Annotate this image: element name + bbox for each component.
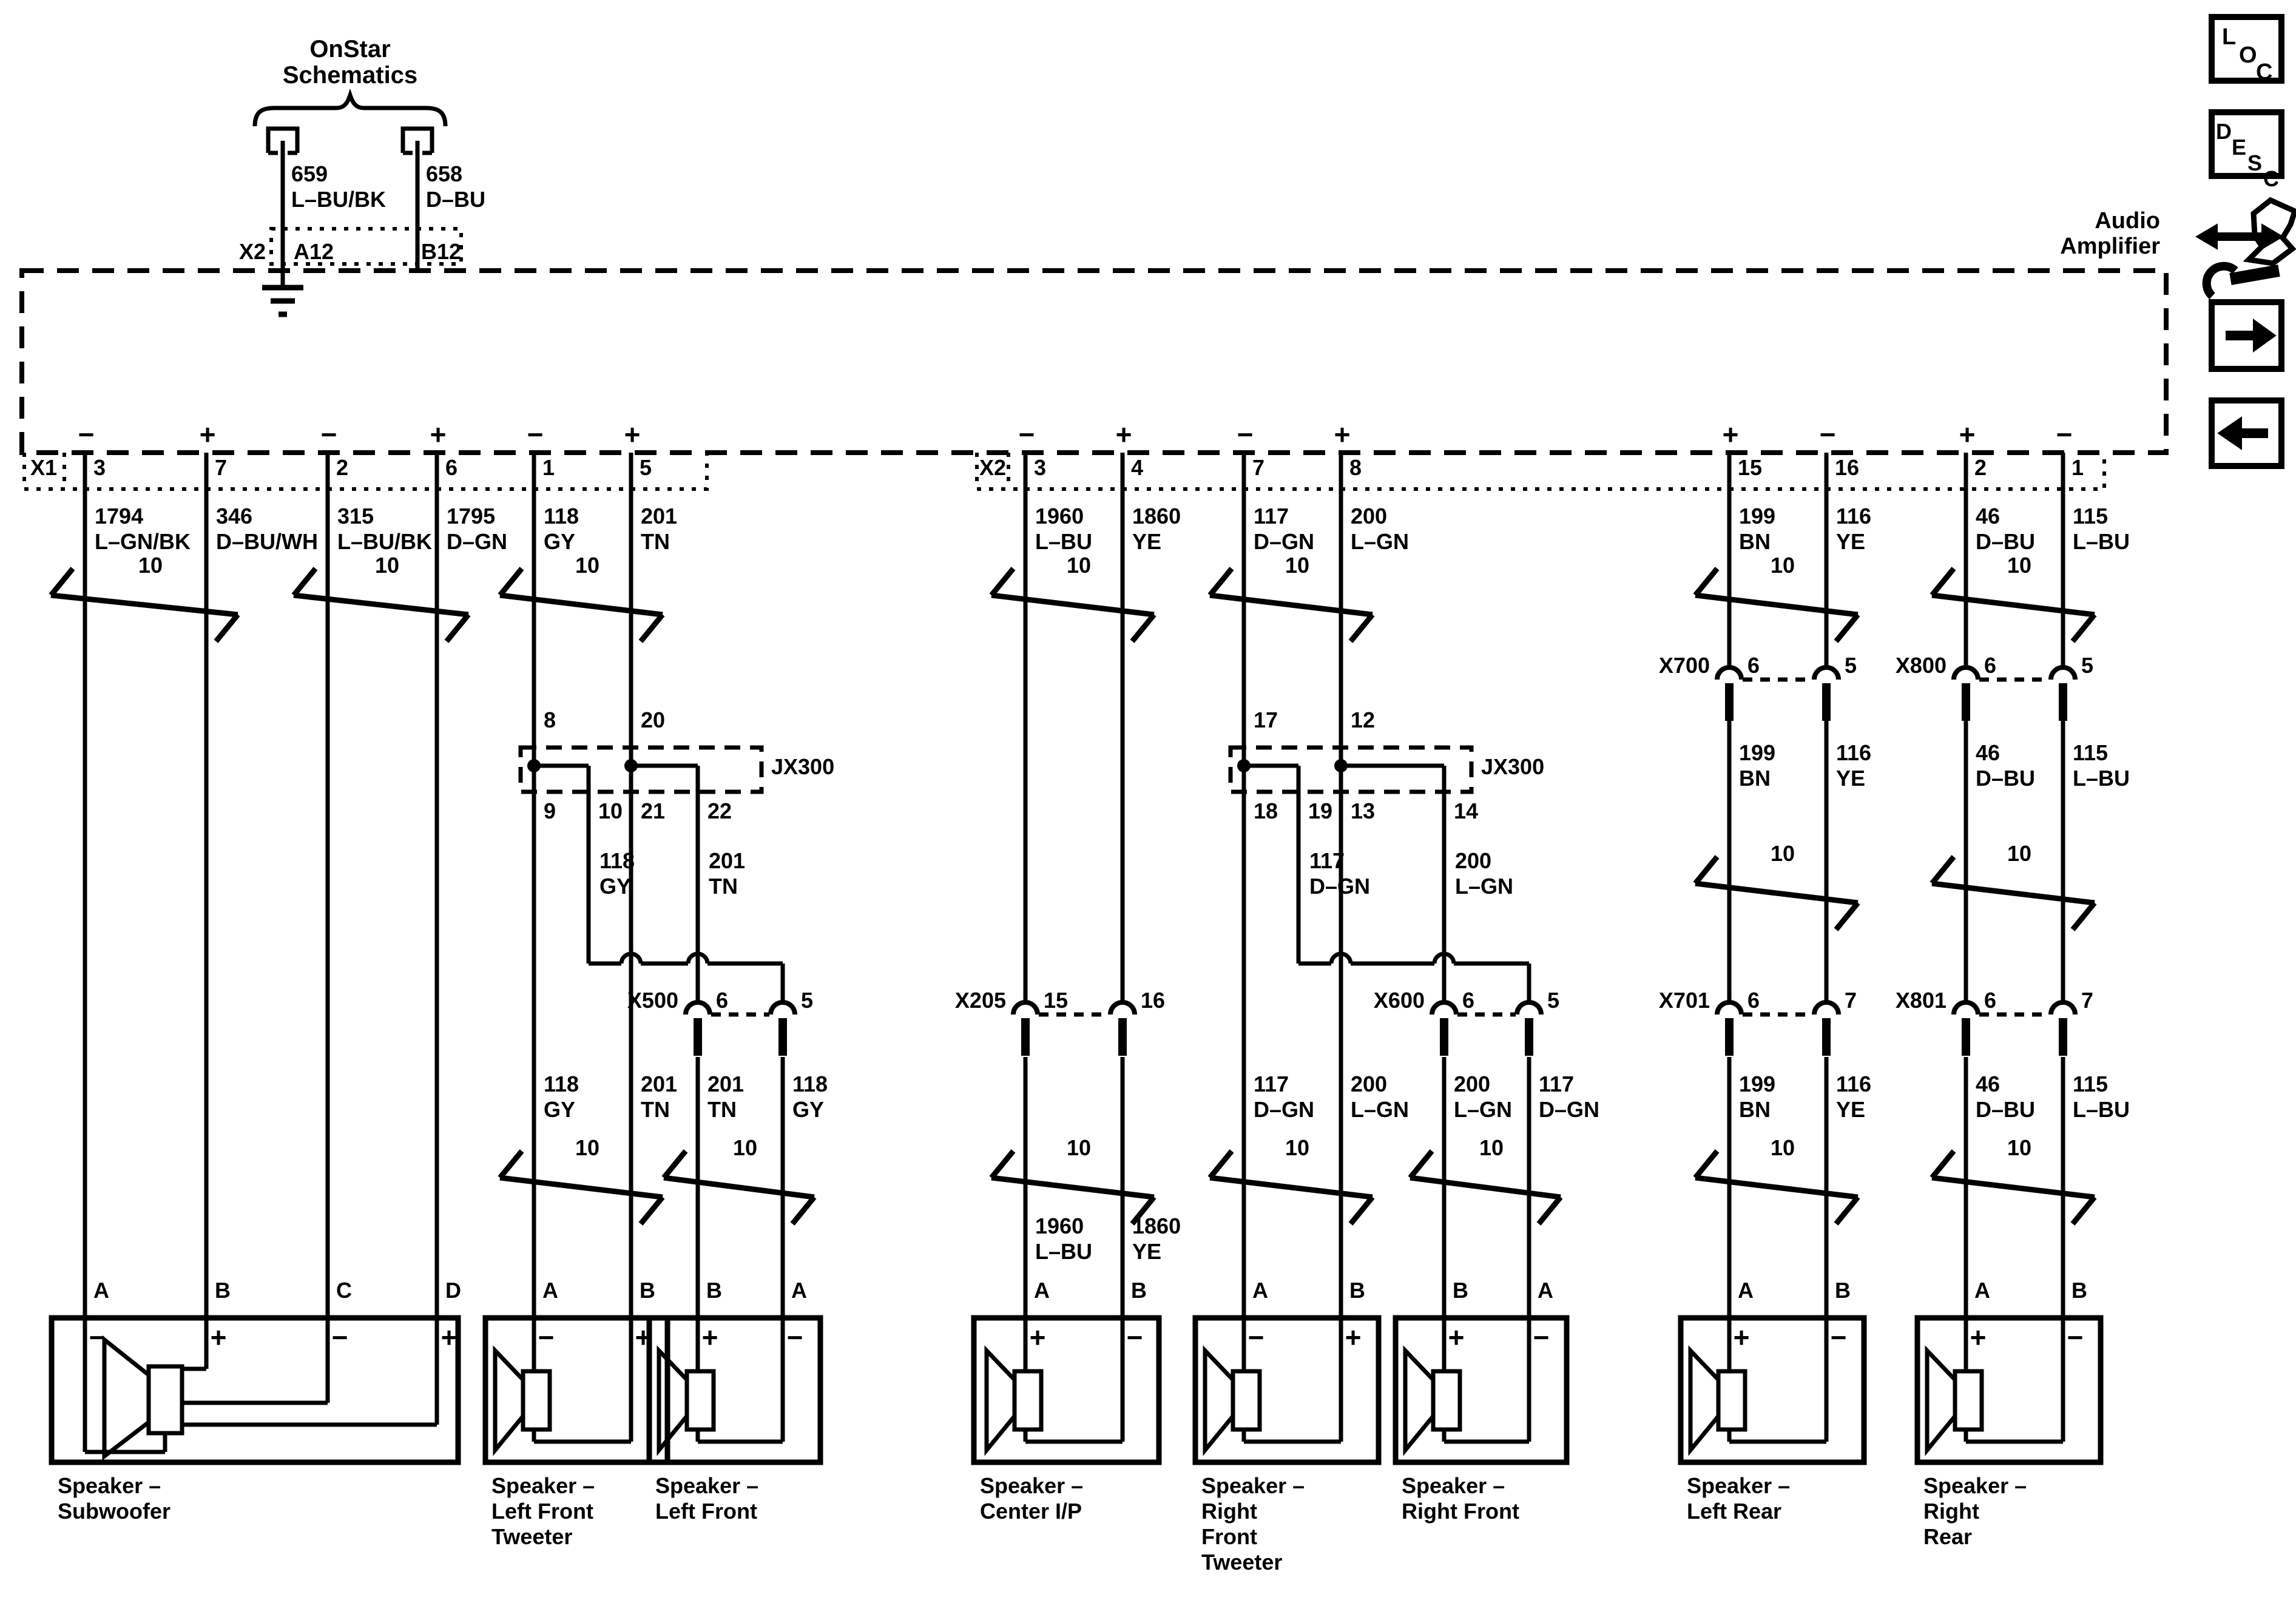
wire-id: 200 bbox=[1351, 505, 1387, 528]
wire-color: L–GN bbox=[1454, 1098, 1512, 1121]
junction-name: JX300 bbox=[771, 755, 834, 778]
wire-id: 200 bbox=[1454, 1073, 1490, 1096]
wire-color: L–BU/BK bbox=[291, 188, 386, 211]
wire-color: L–BU bbox=[1035, 1240, 1092, 1263]
wire-color: L–GN bbox=[1351, 530, 1409, 553]
wire-id: 118 bbox=[544, 1073, 579, 1096]
wire-id: 201 bbox=[641, 1073, 677, 1096]
speaker-pin-sign: − bbox=[787, 1323, 803, 1352]
wire-color: D–GN bbox=[1254, 1098, 1314, 1121]
wire-color: L–BU/BK bbox=[337, 530, 432, 553]
connector-pin: 6 bbox=[1747, 989, 1760, 1012]
wire-color: YE bbox=[1836, 767, 1865, 790]
junction-pin: 19 bbox=[1308, 800, 1332, 823]
wire-color: YE bbox=[1836, 1098, 1865, 1121]
wire-color: GY bbox=[544, 530, 575, 553]
wire-id: 117 bbox=[1254, 1073, 1289, 1096]
wire-id: 1860 bbox=[1132, 1215, 1181, 1238]
wire-id: 1860 bbox=[1132, 505, 1181, 528]
junction-pin: 18 bbox=[1254, 800, 1278, 823]
speaker-pin-letter: B bbox=[1453, 1279, 1468, 1302]
connector-name: X801 bbox=[1896, 989, 1947, 1012]
connector-pin: 5 bbox=[2081, 654, 2093, 677]
shield-size-label: 10 bbox=[1285, 554, 1309, 577]
speaker-label: Subwoofer bbox=[58, 1500, 171, 1523]
wire-color: D–BU bbox=[1976, 1098, 2035, 1121]
wire-id: 117 bbox=[1539, 1073, 1574, 1096]
shield-size-label: 10 bbox=[2007, 842, 2031, 865]
speaker-pin-letter: A bbox=[93, 1279, 109, 1302]
speaker-label: Speaker – bbox=[980, 1474, 1083, 1497]
amp-pin-sign: − bbox=[1820, 420, 1836, 449]
wire-color: D–GN bbox=[1539, 1098, 1599, 1121]
wire-id: 346 bbox=[216, 505, 252, 528]
speaker-pin-sign: + bbox=[1734, 1323, 1750, 1352]
speaker-pin-sign: + bbox=[1030, 1323, 1046, 1352]
wire-id: 200 bbox=[1455, 849, 1491, 873]
loc-button-letter: O bbox=[2239, 44, 2257, 68]
speaker-label: Right bbox=[1201, 1500, 1257, 1523]
wire-color: L–BU bbox=[2073, 1098, 2130, 1121]
loc-button-letter: L bbox=[2222, 25, 2236, 50]
wire-id: 199 bbox=[1739, 505, 1775, 528]
amp-pin-number: 15 bbox=[1738, 456, 1762, 479]
wire-id: 200 bbox=[1351, 1073, 1387, 1096]
amp-pin-sign: − bbox=[321, 420, 337, 449]
speaker-label: Center I/P bbox=[980, 1500, 1082, 1523]
wire-color: YE bbox=[1132, 1240, 1161, 1263]
speaker-pin-sign: + bbox=[1345, 1323, 1362, 1352]
wire-id: 116 bbox=[1836, 741, 1871, 765]
speaker-pin-letter: A bbox=[1034, 1279, 1050, 1302]
junction-pin: 13 bbox=[1351, 800, 1375, 823]
amp-pin-sign: − bbox=[1237, 420, 1254, 449]
speaker-pin-sign: + bbox=[1448, 1323, 1465, 1352]
desc-button-letter: D bbox=[2216, 120, 2232, 143]
wire-color: BN bbox=[1739, 1098, 1771, 1121]
speaker-pin-sign: + bbox=[1970, 1323, 1987, 1352]
junction-pin: 14 bbox=[1454, 800, 1478, 823]
speaker-pin-letter: A bbox=[1738, 1279, 1754, 1302]
wire-id: 115 bbox=[2073, 1073, 2108, 1096]
amp-pin-sign: + bbox=[1959, 420, 1976, 449]
wire-id: 1794 bbox=[95, 505, 143, 528]
speaker-pin-sign: − bbox=[538, 1323, 555, 1352]
wire-color: GY bbox=[544, 1098, 575, 1121]
speaker-pin-letter: B bbox=[706, 1279, 722, 1302]
speaker-label: Speaker – bbox=[1201, 1474, 1305, 1497]
shield-size-label: 10 bbox=[1285, 1136, 1309, 1160]
wire-color: L–GN bbox=[1351, 1098, 1409, 1121]
wire-color: L–GN/BK bbox=[95, 530, 191, 553]
onstar-title-line1: OnStar bbox=[309, 36, 390, 62]
wire-color: D–BU bbox=[1976, 530, 2035, 553]
speaker-label: Left Front bbox=[491, 1500, 593, 1523]
wire-color: BN bbox=[1739, 530, 1771, 553]
connector-pin: 5 bbox=[1547, 989, 1559, 1012]
wire-id: 1960 bbox=[1035, 505, 1084, 528]
shield-size-label: 10 bbox=[1067, 1136, 1091, 1160]
connector-pin: A12 bbox=[294, 240, 334, 263]
speaker-label: Left Rear bbox=[1687, 1500, 1781, 1523]
wire-id: 199 bbox=[1739, 741, 1775, 765]
amp-name-line2: Amplifier bbox=[2060, 235, 2160, 259]
shield-size-label: 10 bbox=[575, 1136, 599, 1160]
shield-size-label: 10 bbox=[2007, 554, 2031, 577]
speaker-pin-sign: + bbox=[635, 1323, 652, 1352]
amp-pin-number: 4 bbox=[1131, 456, 1143, 479]
speaker-pin-letter: B bbox=[2071, 1279, 2087, 1302]
speaker-label: Left Front bbox=[655, 1500, 757, 1523]
speaker-label: Speaker – bbox=[1687, 1474, 1790, 1497]
amp-pin-sign: + bbox=[1723, 420, 1739, 449]
wire-id: 199 bbox=[1739, 1073, 1775, 1096]
connector-pin: 5 bbox=[801, 989, 813, 1012]
connector-pin: 15 bbox=[1044, 989, 1068, 1012]
connector-pin: 16 bbox=[1141, 989, 1165, 1012]
wire-color: TN bbox=[707, 1098, 737, 1121]
junction-pin: 20 bbox=[641, 709, 665, 732]
onstar-title-line2: Schematics bbox=[283, 62, 417, 88]
wire-id: 117 bbox=[1254, 505, 1289, 528]
junction-pin: 10 bbox=[598, 800, 623, 823]
wire-id: 115 bbox=[2073, 505, 2108, 528]
wire-id: 201 bbox=[709, 849, 745, 873]
speaker-pin-letter: A bbox=[1974, 1279, 1990, 1302]
wire-id: 116 bbox=[1836, 505, 1871, 528]
wiring-diagram: OnStar Schematics 659 L–BU/BK 658 D–BU X… bbox=[0, 0, 2296, 1617]
speaker-pin-letter: A bbox=[542, 1279, 558, 1302]
speaker-pin-sign: − bbox=[2067, 1323, 2084, 1352]
amp-pin-sign: + bbox=[1334, 420, 1351, 449]
amp-pin-number: 1 bbox=[2071, 456, 2084, 479]
amp-pin-sign: − bbox=[2056, 420, 2073, 449]
shield-size-label: 10 bbox=[138, 554, 163, 577]
speaker-label: Tweeter bbox=[491, 1525, 572, 1548]
speaker-pin-sign: − bbox=[89, 1323, 106, 1352]
amp-pin-sign: − bbox=[1019, 420, 1035, 449]
connector-pin: B12 bbox=[421, 240, 461, 263]
junction-pin: 22 bbox=[707, 800, 732, 823]
speaker-pin-sign: − bbox=[1533, 1323, 1550, 1352]
speaker-pin-letter: B bbox=[215, 1279, 231, 1302]
wire-color: D–GN bbox=[1309, 875, 1370, 898]
amp-connector-x1: X1 bbox=[30, 456, 57, 479]
speaker-label: Speaker – bbox=[1923, 1474, 2027, 1497]
wire-id: 315 bbox=[337, 505, 374, 528]
amp-pin-sign: + bbox=[200, 420, 216, 449]
loc-button-letter: C bbox=[2256, 61, 2272, 85]
shield-size-label: 10 bbox=[733, 1136, 757, 1160]
back-button[interactable] bbox=[2209, 397, 2284, 469]
amp-pin-number: 16 bbox=[1835, 456, 1859, 479]
junction-pin: 21 bbox=[641, 800, 665, 823]
amp-pin-number: 5 bbox=[640, 456, 652, 479]
connector-name: X2 bbox=[239, 240, 266, 263]
desc-button-letter: E bbox=[2232, 136, 2246, 159]
speaker-label: Front bbox=[1201, 1525, 1257, 1548]
speaker-pin-letter: A bbox=[1252, 1279, 1268, 1302]
speaker-pin-letter: B bbox=[640, 1279, 655, 1302]
amp-pin-number: 3 bbox=[1034, 456, 1046, 479]
speaker-pin-letter: B bbox=[1131, 1279, 1147, 1302]
amp-connector-x2: X2 bbox=[979, 456, 1006, 479]
speaker-pin-letter: A bbox=[791, 1279, 807, 1302]
speaker-pin-sign: − bbox=[1127, 1323, 1143, 1352]
desc-button-letter: C bbox=[2263, 167, 2279, 191]
wire-id: 118 bbox=[792, 1073, 828, 1096]
speaker-label: Rear bbox=[1923, 1525, 1972, 1548]
connector-name: X800 bbox=[1896, 654, 1947, 677]
shield-size-label: 10 bbox=[1771, 842, 1795, 865]
shield-size-label: 10 bbox=[1771, 554, 1795, 577]
wire-id: 658 bbox=[426, 163, 462, 186]
amp-pin-number: 2 bbox=[1974, 456, 1987, 479]
desc-button-letter: S bbox=[2247, 152, 2262, 175]
wire-id: 201 bbox=[641, 505, 677, 528]
speaker-label: Speaker – bbox=[58, 1474, 161, 1497]
junction-pin: 12 bbox=[1351, 709, 1375, 732]
connector-name: X500 bbox=[627, 989, 678, 1012]
connector-pin: 7 bbox=[1845, 989, 1857, 1012]
junction-pin: 8 bbox=[544, 709, 556, 732]
speaker-label: Right Front bbox=[1402, 1500, 1519, 1523]
forward-button[interactable] bbox=[2209, 299, 2284, 372]
junction-name: JX300 bbox=[1481, 755, 1544, 778]
connector-name: X701 bbox=[1659, 989, 1710, 1012]
speaker-pin-sign: − bbox=[1248, 1323, 1264, 1352]
shield-size-label: 10 bbox=[1771, 1136, 1795, 1160]
speaker-label: Speaker – bbox=[655, 1474, 758, 1497]
speaker-pin-letter: B bbox=[1835, 1279, 1851, 1302]
wire-id: 118 bbox=[599, 849, 635, 873]
connector-pin: 7 bbox=[2081, 989, 2093, 1012]
amp-pin-sign: + bbox=[1116, 420, 1132, 449]
wire-id: 46 bbox=[1976, 1073, 2000, 1096]
amp-pin-sign: − bbox=[527, 420, 544, 449]
shield-size-label: 10 bbox=[1479, 1136, 1504, 1160]
shield-size-label: 10 bbox=[375, 554, 399, 577]
wire-color: YE bbox=[1132, 530, 1161, 553]
speaker-pin-letter: A bbox=[1538, 1279, 1553, 1302]
amp-pin-number: 6 bbox=[445, 456, 458, 479]
shield-size-label: 10 bbox=[1067, 554, 1091, 577]
speaker-pin-sign: − bbox=[332, 1323, 348, 1352]
wire-id: 1795 bbox=[447, 505, 495, 528]
amp-pin-number: 7 bbox=[215, 456, 227, 479]
connector-pin: 6 bbox=[1984, 989, 1996, 1012]
wire-color: D–BU bbox=[1976, 767, 2035, 790]
speaker-pin-sign: − bbox=[1831, 1323, 1847, 1352]
junction-pin: 9 bbox=[544, 800, 556, 823]
wire-color: L–BU bbox=[1035, 530, 1092, 553]
connector-name: X205 bbox=[955, 989, 1006, 1012]
wire-color: YE bbox=[1836, 530, 1865, 553]
wire-id: 46 bbox=[1976, 741, 2000, 765]
amp-pin-sign: + bbox=[430, 420, 447, 449]
amp-pin-sign: − bbox=[78, 420, 95, 449]
speaker-pin-letter: B bbox=[1349, 1279, 1365, 1302]
wire-color: TN bbox=[709, 875, 738, 898]
wire-id: 201 bbox=[707, 1073, 744, 1096]
wire-color: D–GN bbox=[1254, 530, 1314, 553]
amp-pin-sign: + bbox=[624, 420, 641, 449]
amp-pin-number: 8 bbox=[1349, 456, 1362, 479]
wire-color: L–BU bbox=[2073, 530, 2130, 553]
wire-id: 46 bbox=[1976, 505, 2000, 528]
diagram-linework bbox=[0, 0, 2296, 1617]
amp-pin-number: 1 bbox=[542, 456, 555, 479]
wire-color: TN bbox=[641, 530, 670, 553]
wire-id: 118 bbox=[544, 505, 579, 528]
wire-color: GY bbox=[792, 1098, 824, 1121]
wire-color: D–GN bbox=[447, 530, 507, 553]
speaker-label: Speaker – bbox=[1402, 1474, 1505, 1497]
speaker-pin-sign: + bbox=[441, 1323, 458, 1352]
speaker-pin-letter: C bbox=[336, 1279, 352, 1302]
wire-color: BN bbox=[1739, 767, 1771, 790]
wire-id: 117 bbox=[1309, 849, 1345, 873]
connector-pin: 6 bbox=[1747, 654, 1760, 677]
connector-pin: 6 bbox=[1984, 654, 1996, 677]
wire-id: 116 bbox=[1836, 1073, 1871, 1096]
speaker-pin-sign: + bbox=[702, 1323, 718, 1352]
wire-color: D–BU bbox=[426, 188, 485, 211]
amp-pin-number: 7 bbox=[1252, 456, 1264, 479]
junction-pin: 17 bbox=[1254, 709, 1278, 732]
wire-id: 115 bbox=[2073, 741, 2108, 765]
connector-pin: 6 bbox=[716, 989, 728, 1012]
schematic-tool-icon[interactable] bbox=[2194, 197, 2296, 287]
speaker-label: Tweeter bbox=[1201, 1551, 1282, 1574]
wire-id: 1960 bbox=[1035, 1215, 1084, 1238]
wire-color: L–GN bbox=[1455, 875, 1513, 898]
wire-color: D–BU/WH bbox=[216, 530, 318, 553]
wire-id: 659 bbox=[291, 163, 328, 186]
connector-name: X700 bbox=[1659, 654, 1710, 677]
speaker-label: Right bbox=[1923, 1500, 1979, 1523]
shield-size-label: 10 bbox=[2007, 1136, 2031, 1160]
connector-pin: 6 bbox=[1462, 989, 1474, 1012]
speaker-pin-letter: D bbox=[445, 1279, 461, 1302]
connector-name: X600 bbox=[1374, 989, 1425, 1012]
amp-pin-number: 2 bbox=[336, 456, 348, 479]
wire-color: GY bbox=[599, 875, 631, 898]
wire-color: L–BU bbox=[2073, 767, 2130, 790]
connector-pin: 5 bbox=[1845, 654, 1857, 677]
speaker-pin-sign: + bbox=[211, 1323, 227, 1352]
wire-color: TN bbox=[641, 1098, 670, 1121]
amp-name-line1: Audio bbox=[2095, 209, 2160, 234]
amp-pin-number: 3 bbox=[93, 456, 106, 479]
speaker-label: Speaker – bbox=[491, 1474, 595, 1497]
shield-size-label: 10 bbox=[575, 554, 599, 577]
